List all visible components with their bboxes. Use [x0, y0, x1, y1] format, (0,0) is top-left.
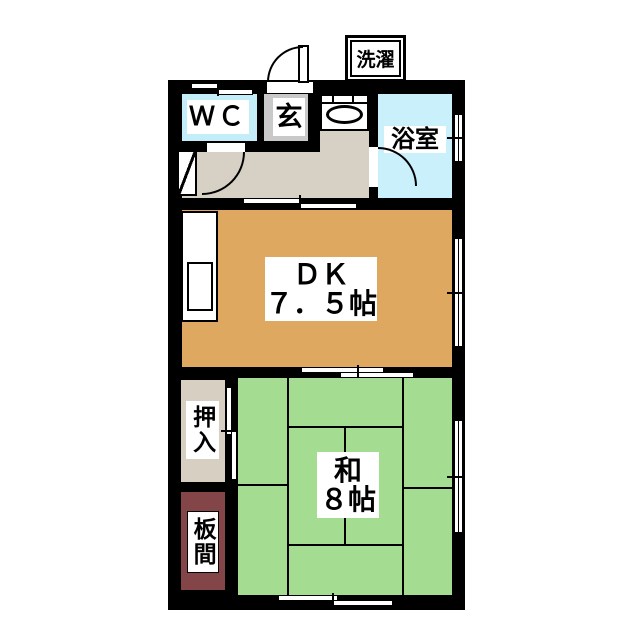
washbasin-counter-divider — [352, 94, 354, 103]
dk-room-size: ７．５帖 — [265, 289, 377, 318]
shoe-cabinet — [177, 150, 197, 196]
closet-slider-bar — [226, 387, 232, 435]
hall-dk-slider-tick — [299, 195, 301, 211]
washitsu-window-tick — [447, 476, 463, 478]
washitsu-label-box: 和 ８帖 — [317, 452, 379, 518]
south-window-bar — [333, 600, 393, 606]
tatami-line — [238, 484, 287, 486]
washbasin-counter-line — [320, 102, 369, 104]
dk-window-tick — [447, 292, 463, 294]
hall-dk-slider-bar — [300, 203, 357, 209]
bathroom-door-opening — [369, 147, 378, 187]
top-window-tick — [217, 81, 219, 96]
wc-door-opening — [207, 143, 245, 152]
closet-slider-tick — [221, 430, 233, 432]
tatami-line — [404, 487, 452, 489]
closet-room-label: 押入 — [186, 401, 219, 459]
washbasin-counter-divider — [332, 94, 334, 103]
top-window-bar — [217, 89, 253, 95]
wood-floor-room-label: 板間 — [187, 511, 219, 573]
washitsu-room-size: ８帖 — [320, 485, 376, 514]
hallway-floor-extension — [320, 131, 369, 155]
washitsu-room-name: 和 — [334, 456, 362, 485]
bathroom-window-tick — [447, 137, 463, 139]
laundry-machine-box: 洗濯 — [345, 35, 406, 82]
laundry-label: 洗濯 — [350, 40, 401, 77]
wc-room-label: ＷＣ — [187, 100, 249, 134]
bathroom-room-label: 浴室 — [384, 126, 446, 153]
closet-slider-bar — [231, 431, 237, 480]
dk-room-name: ＤＫ — [293, 260, 349, 289]
floor-plan: ＷＣ 玄 浴室 洗濯 ＤＫ ７．５帖 — [0, 0, 640, 640]
entrance-opening — [267, 82, 313, 93]
south-window-bar — [278, 595, 338, 601]
dk-label-box: ＤＫ ７．５帖 — [265, 257, 377, 321]
entrance-door-arc — [267, 46, 303, 82]
hall-dk-slider-bar — [243, 198, 302, 204]
tatami-line — [287, 544, 404, 546]
south-window-tick — [332, 593, 334, 609]
tatami-line — [287, 378, 289, 595]
top-window-bar — [191, 83, 219, 89]
entrance-room-label: 玄 — [273, 98, 305, 136]
tatami-line — [287, 426, 404, 428]
kitchen-sink — [187, 262, 213, 311]
washbasin-bowl — [326, 105, 363, 124]
